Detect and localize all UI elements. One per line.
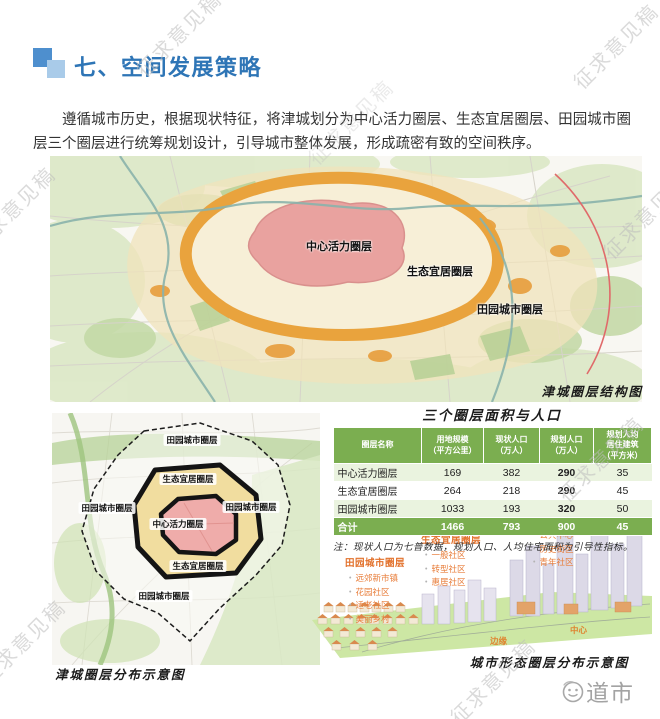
map-label-eco-top: 生态宜居圈层 bbox=[159, 473, 216, 485]
group-garden-circle: 田园城市圈层 远郊新市镇 花园社区 适老社区 美丽乡村 bbox=[345, 555, 431, 626]
figure-caption-distribution-map: 津城圈层分布示意图 bbox=[55, 664, 255, 683]
table-cell: 900 bbox=[540, 518, 594, 536]
map-label-garden-circle: 田园城市圈层 bbox=[477, 301, 543, 317]
table-row: 田园城市圈层 1033 193 320 50 bbox=[334, 500, 652, 518]
group-item: 适老社区 bbox=[349, 599, 431, 613]
table-header-cell: 规划人均 居住建筑 （平方米） bbox=[594, 428, 652, 464]
main-map-image bbox=[50, 156, 642, 402]
smiley-icon bbox=[560, 678, 586, 704]
table-cell: 田园城市圈层 bbox=[334, 500, 422, 518]
map-label-center: 中心活力圈层 bbox=[149, 518, 206, 530]
table-row: 中心活力圈层 169 382 290 35 bbox=[334, 464, 652, 482]
table-cell: 218 bbox=[484, 482, 540, 500]
table-cell: 193 bbox=[484, 500, 540, 518]
table-header-cell: 用地规模 （平方公里） bbox=[422, 428, 484, 464]
group-item: 惠居社区 bbox=[425, 576, 507, 590]
ground-label-edge: 边缘 bbox=[490, 635, 507, 647]
group-item: 花园社区 bbox=[349, 586, 431, 600]
table-cell: 382 bbox=[484, 464, 540, 482]
group-item: 转型社区 bbox=[425, 563, 507, 577]
table-row: 生态宜居圈层 264 218 290 45 bbox=[334, 482, 652, 500]
main-map-figure[interactable]: 中心活力圈层 生态宜居圈层 田园城市圈层 bbox=[50, 156, 642, 402]
ground-label-center: 中心 bbox=[570, 624, 587, 636]
table-cell: 264 bbox=[422, 482, 484, 500]
intro-paragraph: 遵循城市历史，根据现状特征，将津城划分为中心活力圈层、生态宜居圈层、田园城市圈层… bbox=[33, 108, 631, 156]
distribution-map-figure[interactable]: 田园城市圈层 生态宜居圈层 田园城市圈层 田园城市圈层 中心活力圈层 生态宜居圈… bbox=[52, 413, 320, 665]
table-total-row: 合计 1466 793 900 45 bbox=[334, 518, 652, 536]
table-cell: 320 bbox=[540, 500, 594, 518]
map-label-eco-bottom: 生态宜居圈层 bbox=[169, 560, 226, 572]
table-cell: 50 bbox=[594, 500, 652, 518]
figure-caption-structure-map: 津城圈层结构图 bbox=[498, 381, 643, 400]
group-item: 美丽乡村 bbox=[349, 613, 431, 627]
accent-square-icon bbox=[47, 60, 65, 78]
table-cell: 290 bbox=[540, 464, 594, 482]
brand-logo-text: 道市 bbox=[586, 674, 634, 708]
map-label-eco-circle: 生态宜居圈层 bbox=[407, 263, 473, 279]
table-cell: 生态宜居圈层 bbox=[334, 482, 422, 500]
table-cell: 290 bbox=[540, 482, 594, 500]
map-label-garden-top: 田园城市圈层 bbox=[163, 434, 220, 446]
table-header-cell: 圈层名称 bbox=[334, 428, 422, 464]
table-header-cell: 现状人口 （万人） bbox=[484, 428, 540, 464]
distribution-map-image bbox=[52, 413, 320, 665]
group-title: 田园城市圈层 bbox=[345, 555, 431, 569]
brand-logo: 道市 bbox=[560, 674, 634, 708]
table-cell: 45 bbox=[594, 482, 652, 500]
watermark: 征求意见稿 bbox=[566, 0, 660, 95]
map-label-garden-left: 田园城市圈层 bbox=[78, 502, 135, 514]
table-cell: 中心活力圈层 bbox=[334, 464, 422, 482]
table-cell: 合计 bbox=[334, 518, 422, 536]
page-title: 七、空间发展策略 bbox=[74, 50, 262, 82]
map-label-garden-bottom: 田园城市圈层 bbox=[135, 590, 192, 602]
map-label-center-circle: 中心活力圈层 bbox=[306, 238, 372, 254]
circle-table-section: 三个圈层面积与人口 圈层名称 用地规模 （平方公里） 现状人口 （万人） 规划人… bbox=[333, 404, 651, 553]
table-cell: 793 bbox=[484, 518, 540, 536]
table-note: 注：现状人口为七普数据，规划人口、人均住宅面积为引导性指标。 bbox=[333, 539, 651, 553]
group-item: 远郊新市镇 bbox=[349, 572, 431, 586]
table-cell: 1466 bbox=[422, 518, 484, 536]
table-cell: 35 bbox=[594, 464, 652, 482]
article-page: 征求意见稿 征求意见稿 征求意见稿 征求意见稿 征求意见稿 征求意见稿 征求意见… bbox=[0, 0, 660, 719]
table-header-cell: 规划人口 （万人） bbox=[540, 428, 594, 464]
table-cell: 1033 bbox=[422, 500, 484, 518]
map-label-garden-right: 田园城市圈层 bbox=[222, 501, 279, 513]
figure-caption-urban-form: 城市形态圈层分布示意图 bbox=[462, 652, 637, 671]
table-title: 三个圈层面积与人口 bbox=[333, 404, 651, 424]
group-item: 青年社区 bbox=[533, 556, 615, 570]
circle-data-table: 圈层名称 用地规模 （平方公里） 现状人口 （万人） 规划人口 （万人） 规划人… bbox=[333, 427, 652, 536]
table-header-row: 圈层名称 用地规模 （平方公里） 现状人口 （万人） 规划人口 （万人） 规划人… bbox=[334, 428, 652, 464]
table-cell: 169 bbox=[422, 464, 484, 482]
table-cell: 45 bbox=[594, 518, 652, 536]
